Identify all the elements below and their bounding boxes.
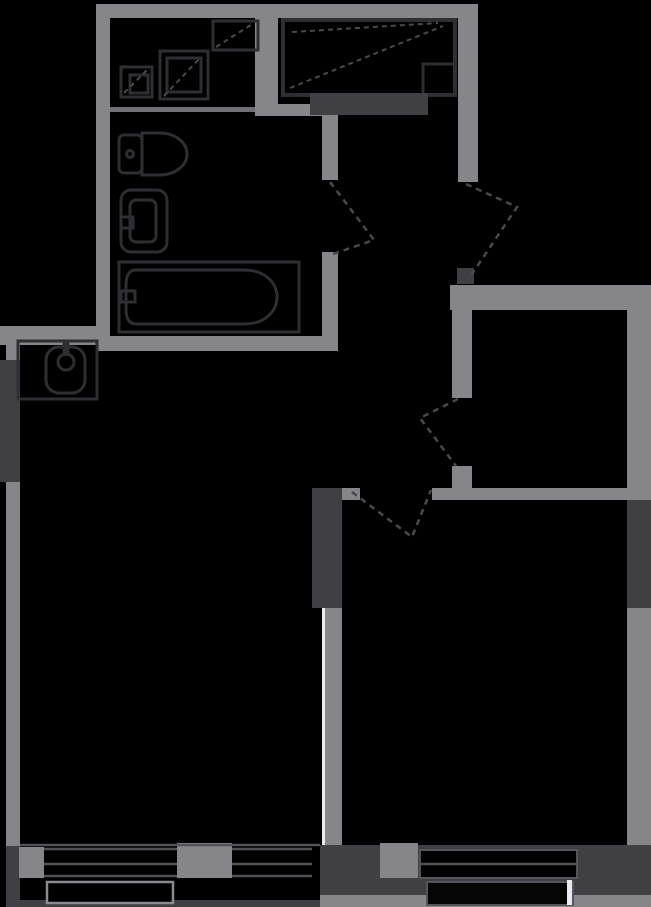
bedroom-window [420,850,577,878]
entry-door-swing [466,184,517,277]
utility-sink-icon [18,341,97,399]
entry-dresser [310,93,428,115]
kitchen-wall-cabinet-icon [213,21,258,50]
toilet-icon [119,133,187,175]
living-room-door-swing [352,490,431,537]
balcony-railing-left [47,882,173,903]
washbasin-icon [121,190,167,252]
bathtub-icon [119,262,299,332]
stove-icon [160,51,208,99]
bathroom-door-swing [330,182,374,254]
living-room-windows [20,845,320,876]
bedroom-door-swing [420,399,458,466]
balcony-railing-right [427,880,573,905]
plan-linework [0,0,651,907]
floor-plan [0,0,651,907]
wardrobe-icon [283,20,455,95]
kitchen-sink-cabinet-icon [121,67,152,97]
